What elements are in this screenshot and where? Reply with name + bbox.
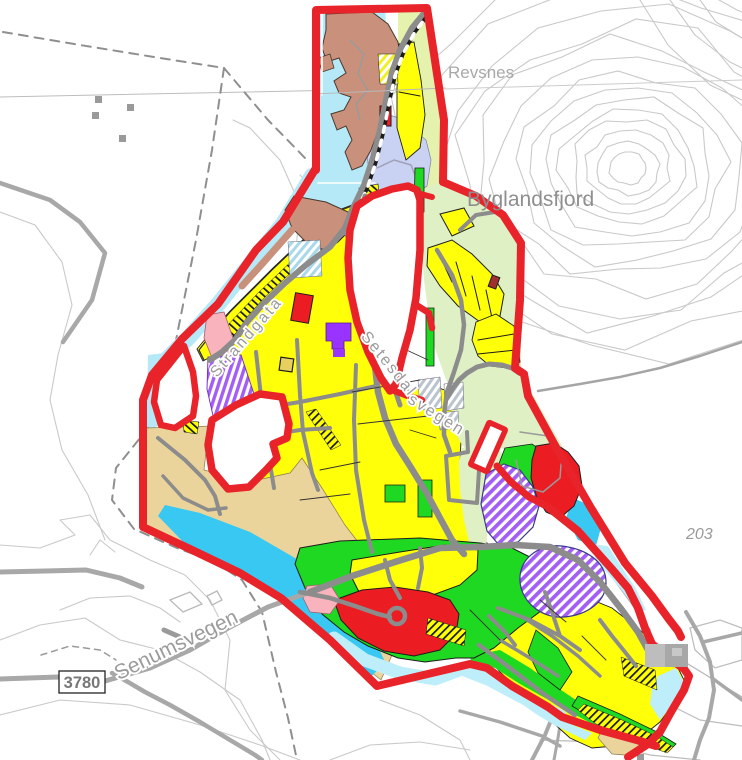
svg-text:3780: 3780 [64, 674, 101, 692]
svg-text:Byglandsfjord: Byglandsfjord [467, 188, 594, 211]
svg-text:203: 203 [685, 526, 713, 543]
svg-text:Revsnes: Revsnes [448, 63, 514, 82]
